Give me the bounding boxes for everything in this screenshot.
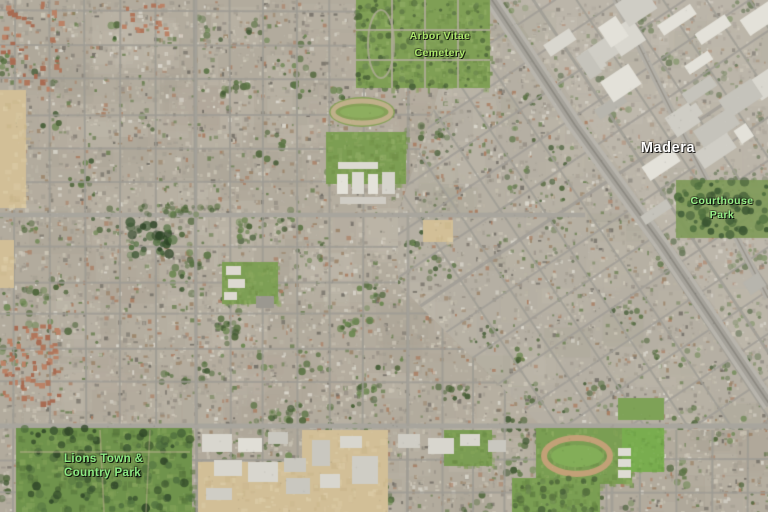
satellite-imagery[interactable]	[0, 0, 768, 512]
map-viewport: Arbor Vitae Cemetery Madera Courthouse P…	[0, 0, 768, 512]
